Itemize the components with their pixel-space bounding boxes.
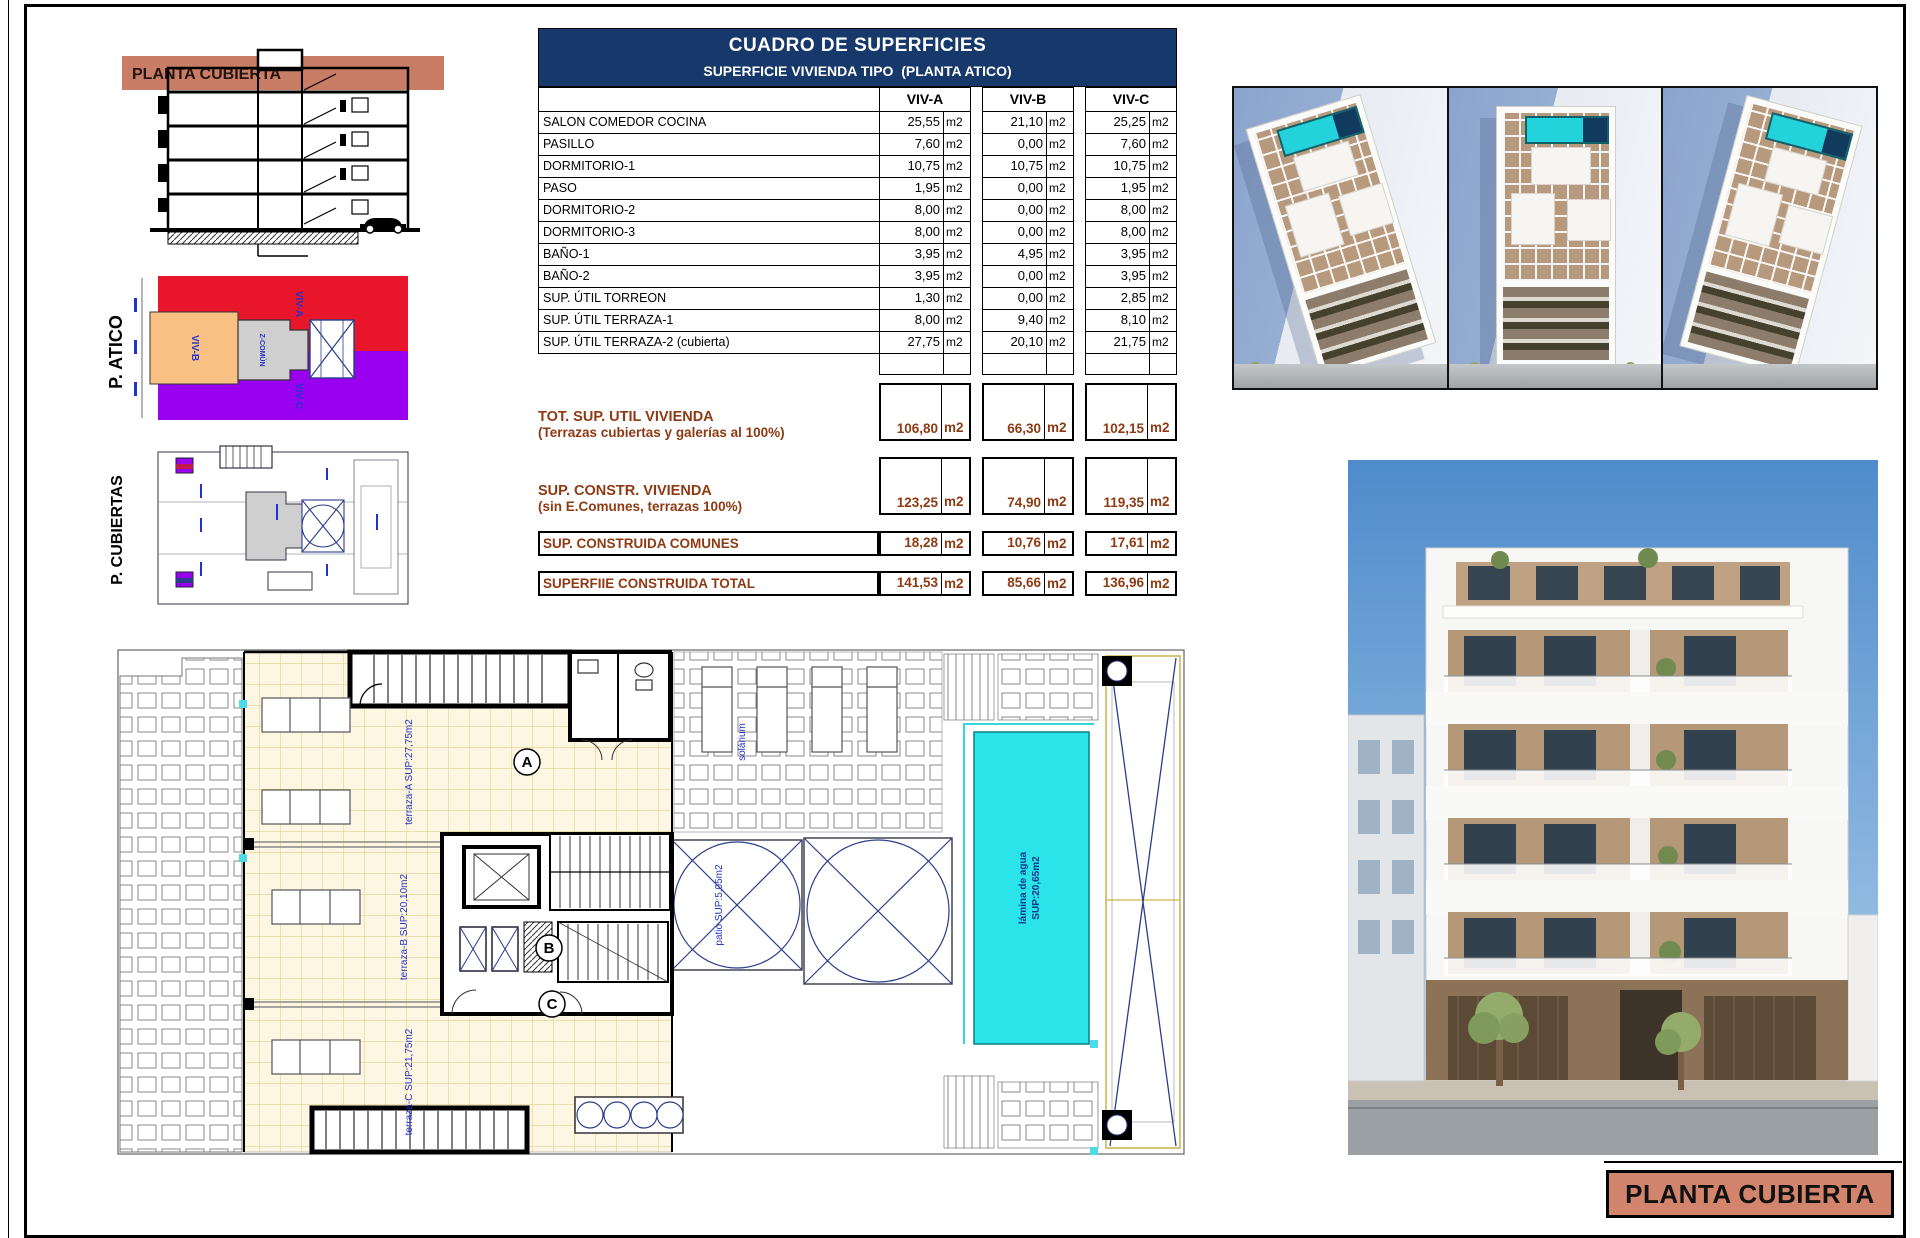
table-subtitle: SUPERFICIE VIVIENDA TIPO (PLANTA ATICO): [539, 63, 1176, 79]
summary-value-box: 141,53m2: [879, 571, 971, 596]
cell-value: 2,85: [1085, 288, 1149, 310]
cell-value: 10,75: [1085, 156, 1149, 178]
roof-floor-plan: lámina de agua SUP:20,65m2 A B C terraz: [112, 642, 1192, 1162]
cell-value: 1,30: [879, 288, 943, 310]
cell-value: 7,60: [879, 134, 943, 156]
cell-value: 3,95: [879, 244, 943, 266]
solar-collectors: [575, 1097, 683, 1133]
summary-value-box: 119,35m2: [1085, 457, 1177, 515]
summary-label-sub: (sin E.Comunes, terrazas 100%): [538, 499, 879, 515]
pool-area-label: SUP:20,65m2: [1031, 856, 1042, 920]
cell-empty: [943, 354, 971, 375]
cell-unit: m2: [943, 266, 971, 288]
render-building: [1679, 95, 1862, 377]
summary-value: 74,90: [984, 495, 1044, 513]
row-label: SALON COMEDOR COCINA: [538, 112, 879, 134]
cell-unit: m2: [943, 112, 971, 134]
cell-value: 0,00: [982, 222, 1046, 244]
cell-unit: m2: [1149, 222, 1177, 244]
reserved-strip: [1102, 656, 1180, 1148]
summary-label-sub: (Terrazas cubiertas y galerías al 100%): [538, 425, 879, 441]
cell-value: 0,00: [982, 134, 1046, 156]
cell-value: 25,55: [879, 112, 943, 134]
row-label: DORMITORIO-1: [538, 156, 879, 178]
summary-value-box: 136,96m2: [1085, 571, 1177, 596]
row-label: SUP. ÚTIL TERRAZA-2 (cubierta): [538, 332, 879, 354]
cell-unit: m2: [1149, 156, 1177, 178]
summary-unit: m2: [941, 533, 969, 554]
summary-value: 66,30: [984, 421, 1044, 439]
summary-value-box: 74,90m2: [982, 457, 1074, 515]
sheet-title-box: PLANTA CUBIERTA: [1606, 1170, 1894, 1218]
summary-value-box: 106,80m2: [879, 383, 971, 441]
cell-unit: m2: [1046, 288, 1074, 310]
row-label: SUP. ÚTIL TERRAZA-1: [538, 310, 879, 332]
summary-value: 119,35: [1087, 495, 1147, 513]
cell-unit: m2: [1046, 266, 1074, 288]
common-zone-label: Z-COMÚN: [258, 333, 267, 366]
column-header-viv-b: VIV-B: [982, 87, 1074, 112]
summary-unit: m2: [1044, 385, 1072, 439]
cell-value: 3,95: [879, 266, 943, 288]
cell-value: 8,00: [879, 222, 943, 244]
cell-unit: m2: [1149, 134, 1177, 156]
key-plan-atico: P. ATICO VIV-A VIV-B VIV-C Z-COMÚN: [100, 268, 420, 430]
stair-top: [350, 652, 570, 706]
cell-unit: m2: [1046, 200, 1074, 222]
left-paver-terrace: [120, 658, 242, 1152]
column-header-spacer: [538, 87, 879, 112]
cell-value: 25,25: [1085, 112, 1149, 134]
cell-value: 3,95: [1085, 266, 1149, 288]
table-header: CUADRO DE SUPERFICIESSUPERFICIE VIVIENDA…: [538, 28, 1177, 87]
summary-value: 102,15: [1087, 421, 1147, 439]
summary-value: 10,76: [984, 535, 1044, 553]
row-label: PASO: [538, 178, 879, 200]
summary-value: 136,96: [1087, 575, 1147, 593]
cell-value: 8,00: [879, 310, 943, 332]
cell-unit: m2: [1046, 112, 1074, 134]
cubiertas-plan-label: P. CUBIERTAS: [109, 475, 126, 585]
terraza-a-label: terraza-A SUP:27,75m2: [404, 719, 415, 825]
table-spacer: [538, 442, 1177, 457]
row-label: PASILLO: [538, 134, 879, 156]
cell-unit: m2: [1046, 134, 1074, 156]
summary-label-main: SUP. CONSTR. VIVIENDA: [538, 483, 879, 500]
cell-value: 0,00: [982, 266, 1046, 288]
summary-value-box: 123,25m2: [879, 457, 971, 515]
cell-value: 3,95: [1085, 244, 1149, 266]
pool-label: lámina de agua: [1018, 851, 1029, 924]
title-block-divider: [1604, 1161, 1902, 1163]
row-label: SUP. ÚTIL TORREON: [538, 288, 879, 310]
table-spacer: [538, 516, 1177, 531]
cell-unit: m2: [1149, 178, 1177, 200]
column-header-viv-a: VIV-A: [879, 87, 971, 112]
cell-value: 1,95: [1085, 178, 1149, 200]
row-label: DORMITORIO-3: [538, 222, 879, 244]
cell-value: 27,75: [879, 332, 943, 354]
cell-unit: m2: [943, 288, 971, 310]
atico-plan-label: P. ATICO: [106, 315, 126, 389]
sheet-title: PLANTA CUBIERTA: [1625, 1179, 1875, 1210]
summary-label-main: TOT. SUP. UTIL VIVIENDA: [538, 409, 879, 426]
balcony-bands: [1426, 630, 1848, 976]
viv-b-label: VIV-B: [189, 335, 200, 361]
cell-empty: [982, 354, 1046, 375]
dome-skylight-symbol: [302, 500, 344, 552]
summary-unit: m2: [1147, 385, 1175, 439]
summary-unit: m2: [941, 385, 969, 439]
cell-value: 1,95: [879, 178, 943, 200]
cell-value: 8,00: [879, 200, 943, 222]
table-spacer: [538, 375, 1177, 383]
cell-unit: m2: [1046, 310, 1074, 332]
cell-empty: [879, 354, 943, 375]
column-header-viv-c: VIV-C: [1085, 87, 1177, 112]
svg-text:C: C: [547, 996, 558, 1013]
viv-c-label: VIV-C: [293, 383, 304, 409]
pool: lámina de agua SUP:20,65m2: [964, 724, 1094, 1044]
cell-value: 21,10: [982, 112, 1046, 134]
cell-value: 10,75: [879, 156, 943, 178]
viv-a-label: VIV-A: [293, 291, 304, 317]
row-label-empty: [538, 354, 879, 374]
solarium-label: solárium: [737, 723, 748, 761]
summary-unit: m2: [1044, 459, 1072, 513]
summary-value-box: 102,15m2: [1085, 383, 1177, 441]
summary-value: 18,28: [881, 535, 941, 553]
summary-label: SUP. CONSTR. VIVIENDA(sin E.Comunes, ter…: [538, 457, 879, 516]
render-panel-left: [1234, 88, 1447, 388]
summary-value: 17,61: [1087, 535, 1147, 553]
cell-unit: m2: [1149, 244, 1177, 266]
cell-unit: m2: [1149, 266, 1177, 288]
cell-unit: m2: [1149, 288, 1177, 310]
cell-value: 8,00: [1085, 200, 1149, 222]
cell-empty: [1085, 354, 1149, 375]
cell-unit: m2: [943, 222, 971, 244]
cell-empty: [1046, 354, 1074, 375]
summary-value-box: 66,30m2: [982, 383, 1074, 441]
summary-unit: m2: [941, 459, 969, 513]
stair-core-symbol: [310, 320, 354, 378]
cell-value: 20,10: [982, 332, 1046, 354]
drawing-sheet: PLANTA CUBIERTA: [0, 0, 1920, 1238]
cell-unit: m2: [1149, 112, 1177, 134]
cell-unit: m2: [943, 134, 971, 156]
summary-label: TOT. SUP. UTIL VIVIENDA(Terrazas cubiert…: [538, 383, 879, 442]
roof-3d-renders: [1232, 86, 1878, 390]
cell-unit: m2: [943, 178, 971, 200]
row-label: DORMITORIO-2: [538, 200, 879, 222]
summary-value-box: 18,28m2: [879, 531, 971, 556]
facade-render: [1348, 460, 1878, 1155]
cell-unit: m2: [1046, 222, 1074, 244]
svg-text:A: A: [522, 754, 533, 771]
key-plan-cubiertas: P. CUBIERTAS: [100, 444, 420, 616]
cell-empty: [1149, 354, 1177, 375]
table-title: CUADRO DE SUPERFICIES: [539, 35, 1176, 57]
summary-value: 123,25: [881, 495, 941, 513]
summary-label: SUP. CONSTRUIDA COMUNES: [538, 531, 879, 556]
cell-unit: m2: [1046, 244, 1074, 266]
stair-bottom: [312, 1108, 527, 1152]
cell-unit: m2: [1046, 156, 1074, 178]
cell-unit: m2: [943, 200, 971, 222]
terraza-b-label: terraza-B SUP:20,10m2: [399, 873, 410, 980]
summary-unit: m2: [941, 573, 969, 594]
summary-unit: m2: [1147, 533, 1175, 554]
cell-unit: m2: [943, 332, 971, 354]
cell-value: 0,00: [982, 200, 1046, 222]
surface-table: CUADRO DE SUPERFICIESSUPERFICIE VIVIENDA…: [538, 28, 1179, 596]
cell-unit: m2: [943, 310, 971, 332]
cell-value: 4,95: [982, 244, 1046, 266]
summary-value: 141,53: [881, 575, 941, 593]
summary-value: 106,80: [881, 421, 941, 439]
cell-value: 0,00: [982, 178, 1046, 200]
cell-value: 8,00: [1085, 222, 1149, 244]
table-spacer: [538, 556, 1177, 571]
cell-value: 0,00: [982, 288, 1046, 310]
summary-value-box: 10,76m2: [982, 531, 1074, 556]
cell-unit: m2: [1046, 178, 1074, 200]
summary-value-box: 17,61m2: [1085, 531, 1177, 556]
rooftop-pool: [1525, 116, 1609, 144]
cell-unit: m2: [1149, 332, 1177, 354]
cell-unit: m2: [943, 244, 971, 266]
cell-unit: m2: [1149, 310, 1177, 332]
building-section-drawing: PLANTA CUBIERTA: [108, 24, 448, 264]
cell-value: 10,75: [982, 156, 1046, 178]
cell-value: 21,75: [1085, 332, 1149, 354]
terraza-c-label: terraza-C SUP:21,75m2: [404, 1028, 415, 1135]
cell-value: 9,40: [982, 310, 1046, 332]
cell-unit: m2: [1046, 332, 1074, 354]
render-panel-center: [1447, 88, 1662, 388]
summary-unit: m2: [1044, 533, 1072, 554]
cell-unit: m2: [1149, 200, 1177, 222]
sheet-edge-line: [8, 0, 9, 1238]
cell-value: 7,60: [1085, 134, 1149, 156]
cell-unit: m2: [943, 156, 971, 178]
cell-value: 8,10: [1085, 310, 1149, 332]
central-core: [442, 834, 672, 1014]
svg-text:B: B: [544, 940, 555, 957]
summary-unit: m2: [1044, 573, 1072, 594]
stair-ticks: [220, 446, 272, 468]
patio-label: patio SUP:5,05m2: [714, 864, 725, 946]
summary-unit: m2: [1147, 459, 1175, 513]
summary-unit: m2: [1147, 573, 1175, 594]
row-label: BAÑO-1: [538, 244, 879, 266]
summary-value-box: 85,66m2: [982, 571, 1074, 596]
render-building: [1496, 106, 1616, 366]
render-building: [1246, 94, 1437, 378]
summary-value: 85,66: [984, 575, 1044, 593]
row-label: BAÑO-2: [538, 266, 879, 288]
summary-label: SUPERFIIE CONSTRUIDA TOTAL: [538, 571, 879, 596]
render-panel-right: [1661, 88, 1876, 388]
